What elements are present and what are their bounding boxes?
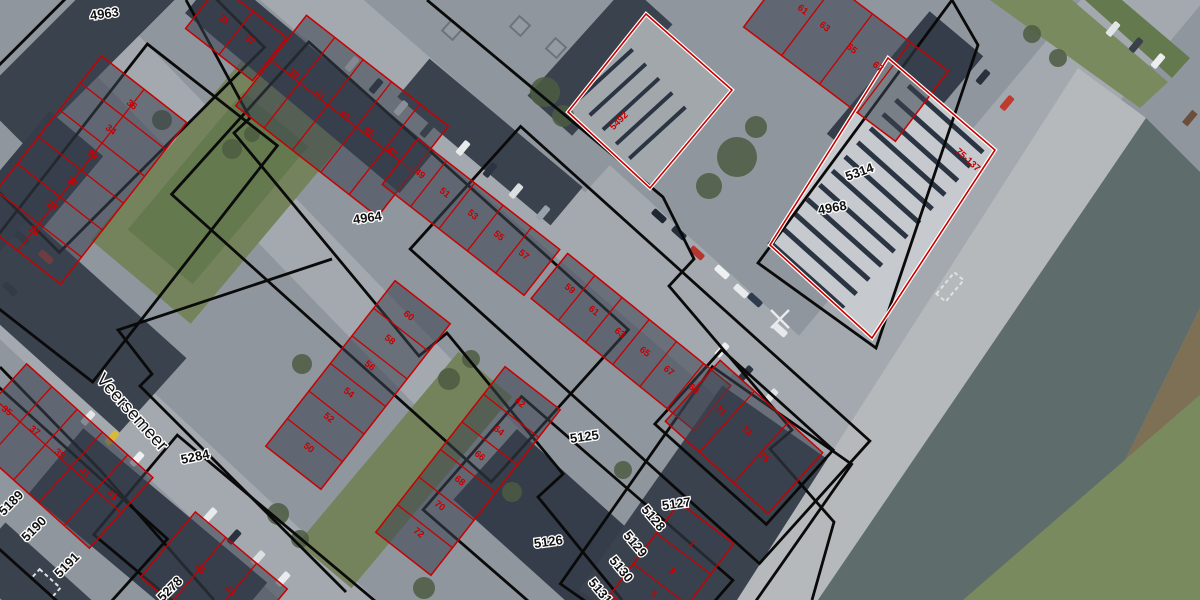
tree xyxy=(1023,25,1041,43)
tree xyxy=(502,482,522,502)
tree xyxy=(222,139,242,159)
map-viewport[interactable]: 2628303234363537394143454749515355575961… xyxy=(0,0,1200,600)
tree xyxy=(717,137,757,177)
aerial-cadastral-map[interactable]: 2628303234363537394143454749515355575961… xyxy=(0,0,1200,600)
tree xyxy=(292,354,312,374)
tree xyxy=(614,461,632,479)
tree xyxy=(745,116,767,138)
tree xyxy=(438,368,460,390)
tree xyxy=(530,77,560,107)
tree xyxy=(1049,49,1067,67)
tree xyxy=(696,173,722,199)
tree xyxy=(413,577,435,599)
